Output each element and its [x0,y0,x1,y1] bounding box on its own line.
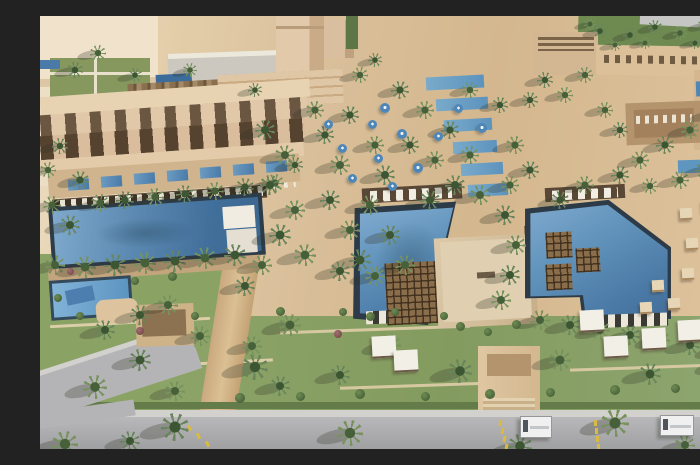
palm-tree [190,326,210,346]
shrub [131,277,139,285]
palm-fronds [549,349,571,371]
palm-tree [158,295,178,315]
palm-fronds [639,363,661,385]
palm-fronds [60,215,80,235]
palm-fronds [366,136,384,154]
shrub [366,312,375,321]
shrub [54,294,62,302]
shrub [339,308,347,316]
palm-fronds [360,195,380,215]
palm-tree [330,365,350,385]
water-channel [461,162,504,176]
palm-tree [43,196,61,214]
palm-fronds [420,190,440,210]
palm-fronds [365,266,385,286]
road-marking [594,420,597,426]
palm-tree [593,24,607,38]
palm-fronds [639,37,651,49]
sun-tent [652,280,665,293]
palm-fronds [506,136,524,154]
pool-umbrella [413,163,423,173]
entry-steps [483,398,535,410]
palm-tree [71,171,89,189]
palm-tree [611,166,629,184]
palm-tree [416,101,434,119]
palm-fronds [648,20,662,34]
palm-tree [426,151,444,169]
palm-fronds [90,45,106,61]
palm-tree [368,53,382,67]
left-pool-reflection [95,216,196,249]
palm-fronds [380,225,400,245]
road-marking [595,428,598,434]
palm-tree [252,255,272,275]
palm-fronds [416,101,434,119]
palm-tree [551,191,569,209]
palm-tree [522,92,538,108]
palm-fronds [522,92,538,108]
palm-tree [495,205,515,225]
palm-tree [128,68,142,82]
palm-tree [146,188,164,206]
palm-fronds [294,244,316,266]
green-wall [346,16,358,49]
palm-fronds [501,176,519,194]
pool-umbrella [434,132,443,141]
palm-fronds [330,155,350,175]
plunge-pool [134,172,156,184]
palm-fronds [330,261,350,281]
palm-tree [260,175,280,195]
palm-fronds [597,102,613,118]
shrub [76,312,84,320]
palm-fronds [492,97,508,113]
palm-fronds [129,349,151,371]
palm-fronds [681,121,699,139]
palm-fronds [67,62,83,78]
pool-umbrella [338,144,347,153]
palm-fronds [461,146,479,164]
palm-fronds [71,171,89,189]
flowering-shrub [334,330,342,338]
palm-tree [391,81,409,99]
palm-tree [492,97,508,113]
left-pool-cabana [222,205,255,229]
palm-fronds [52,138,68,154]
palm-tree [242,336,262,356]
flowering-shrub [136,327,144,335]
palm-fronds [158,295,178,315]
palm-tree [681,121,699,139]
pool-umbrella [454,104,463,113]
palm-fronds [320,190,340,210]
palm-fronds [116,191,134,209]
palm-fronds [551,191,569,209]
water-strip-left [40,60,60,69]
palm-tree [352,67,368,83]
vehicle-window [663,419,668,430]
palm-tree [285,200,305,220]
shrub [671,384,680,393]
palm-tree [506,136,524,154]
palm-tree [242,354,268,380]
palm-fronds [337,420,363,446]
palm-tree [366,136,384,154]
palm-tree [95,320,115,340]
pool-umbrella [348,174,357,183]
shrub [276,307,285,316]
palm-tree [316,126,334,144]
palm-tree [129,349,151,371]
palm-tree [380,225,400,245]
palm-fronds [448,359,472,383]
palm-tree [255,120,275,140]
palm-fronds [279,314,301,336]
palm-fronds [270,376,290,396]
palm-tree [461,146,479,164]
palm-fronds [577,67,593,83]
palm-tree [506,235,526,255]
palm-tree [161,413,189,441]
palm-fronds [285,200,305,220]
pool-umbrella [388,182,397,191]
palm-fronds [52,431,78,449]
palm-tree [235,276,255,296]
palm-fronds [242,336,262,356]
palm-tree [639,37,651,49]
palm-fronds [441,121,459,139]
road-marking [597,444,600,449]
service-vehicle [520,416,552,438]
vehicle-stripe [670,425,691,428]
palm-fronds [306,101,324,119]
palm-fronds [260,175,280,195]
palm-tree [420,190,440,210]
palm-fronds [269,224,291,246]
palm-tree [623,28,637,42]
right-pool-pergola-island [545,231,572,258]
pool-umbrella [324,120,333,129]
palm-fronds [426,151,444,169]
shrub [610,385,620,395]
palm-fronds [557,87,573,103]
tower-a-ledge [276,26,324,29]
palm-tree [60,215,80,235]
palm-tree [445,175,465,195]
palm-fronds [252,255,272,275]
palm-tree [176,185,194,203]
palm-tree [537,72,553,88]
palm-tree [340,220,360,240]
cabana-tent [393,349,418,372]
palm-fronds [235,276,255,296]
shrub [391,308,399,316]
palm-tree [462,82,478,98]
entry-portal-inner [487,354,531,376]
palm-fronds [656,136,674,154]
palm-fronds [83,375,107,399]
shrub [456,322,465,331]
palm-tree [648,20,662,34]
palm-tree [500,265,520,285]
palm-fronds [521,161,539,179]
palm-fronds [340,220,360,240]
palm-tree [224,244,246,266]
palm-tree [656,136,674,154]
palm-tree [120,431,140,449]
palm-fronds [631,151,649,169]
palm-tree [116,191,134,209]
pool-umbrella [397,129,407,139]
palm-fronds [612,122,628,138]
palm-fronds [341,106,359,124]
palm-tree [597,102,613,118]
shrub [168,272,177,281]
cabana-tent [677,319,700,342]
palm-tree [557,87,573,103]
resort-rendering [40,16,700,449]
palm-tree [83,375,107,399]
palm-tree [675,435,695,449]
palm-fronds [224,244,246,266]
palm-fronds [165,381,185,401]
palm-fronds [673,26,687,40]
palm-tree [330,261,350,281]
pool-umbrella [374,154,383,163]
sun-tent [682,268,695,281]
palm-fronds [462,82,478,98]
palm-tree [577,67,593,83]
palm-tree [330,155,350,175]
shrub [485,389,495,399]
shrub [191,312,199,320]
palm-tree [365,266,385,286]
palm-tree [270,376,290,396]
plunge-pool [200,166,222,178]
palm-fronds [255,120,275,140]
palm-tree [320,190,340,210]
palm-tree [269,224,291,246]
palm-fronds [689,37,700,49]
palm-tree [441,121,459,139]
palm-fronds [611,166,629,184]
sun-tent [640,302,653,315]
pool-umbrella [368,120,377,129]
palm-fronds [593,24,607,38]
palm-tree [52,431,78,449]
palm-tree [67,62,83,78]
palm-fronds [576,176,594,194]
cabana-tent [641,327,666,350]
vehicle-window [523,420,528,432]
palm-tree [279,314,301,336]
palm-tree [639,363,661,385]
palm-fronds [675,435,695,449]
palm-fronds [183,63,197,77]
sun-tent [686,238,699,251]
plunge-pool [101,175,123,187]
palm-tree [294,244,316,266]
palm-tree [275,145,295,165]
palm-tree [360,195,380,215]
palm-fronds [368,53,382,67]
building-mid-right-louvers [538,37,594,51]
palm-tree [306,101,324,119]
flowering-shrub [67,268,74,275]
palm-fronds [95,320,115,340]
palm-tree [631,151,649,169]
palm-tree [501,176,519,194]
palm-tree [52,138,68,154]
shrub [484,328,492,336]
right-pool-pergola-island [545,263,572,290]
palm-tree [165,381,185,401]
shrub [440,312,448,320]
palm-tree [183,63,197,77]
palm-fronds [248,83,262,97]
shrub [355,389,365,399]
shrub [546,388,555,397]
palm-fronds [395,255,415,275]
palm-tree [395,255,415,275]
palm-fronds [495,205,515,225]
palm-tree [689,37,700,49]
palm-fronds [330,365,350,385]
palm-fronds [500,265,520,285]
palm-tree [248,83,262,97]
cabana-tent [579,309,604,332]
palm-fronds [391,81,409,99]
pool-umbrella [380,103,390,113]
road-marking [596,436,599,442]
palm-tree [549,349,571,371]
pool-umbrella [477,123,487,133]
palm-fronds [190,326,210,346]
palm-tree [642,178,658,194]
palm-fronds [242,354,268,380]
palm-fronds [623,28,637,42]
palm-fronds [128,68,142,82]
sun-tent [680,208,693,221]
palm-fronds [40,162,56,178]
right-pool-pergola-island [575,247,600,272]
cabana-tent [603,335,628,358]
palm-fronds [537,72,553,88]
palm-tree [90,45,106,61]
palm-fronds [120,431,140,449]
palm-tree [337,420,363,446]
palm-tree [341,106,359,124]
shrub [296,392,305,401]
hedge-row [40,402,700,409]
vehicle-stripe [530,426,550,429]
palm-fronds [352,67,368,83]
shrub [421,392,430,401]
palm-tree [40,162,56,178]
palm-fronds [275,145,295,165]
palm-fronds [445,175,465,195]
palm-fronds [642,178,658,194]
palm-fronds [491,290,511,310]
palm-fronds [43,196,61,214]
shrub [235,393,245,403]
palm-fronds [146,188,164,206]
palm-tree [696,161,700,179]
palm-tree [576,176,594,194]
palm-fronds [161,413,189,441]
palm-tree [491,290,511,310]
plunge-pool [233,163,255,175]
palm-fronds [316,126,334,144]
palm-tree [521,161,539,179]
plunge-pool [167,169,189,181]
pool-small-far-right [696,81,700,97]
palm-fronds [506,235,526,255]
roof-garden-path [94,58,97,98]
palm-tree [673,26,687,40]
palm-tree [612,122,628,138]
palm-tree [448,359,472,383]
sun-tent [668,298,681,311]
shrub [512,320,521,329]
palm-fronds [176,185,194,203]
